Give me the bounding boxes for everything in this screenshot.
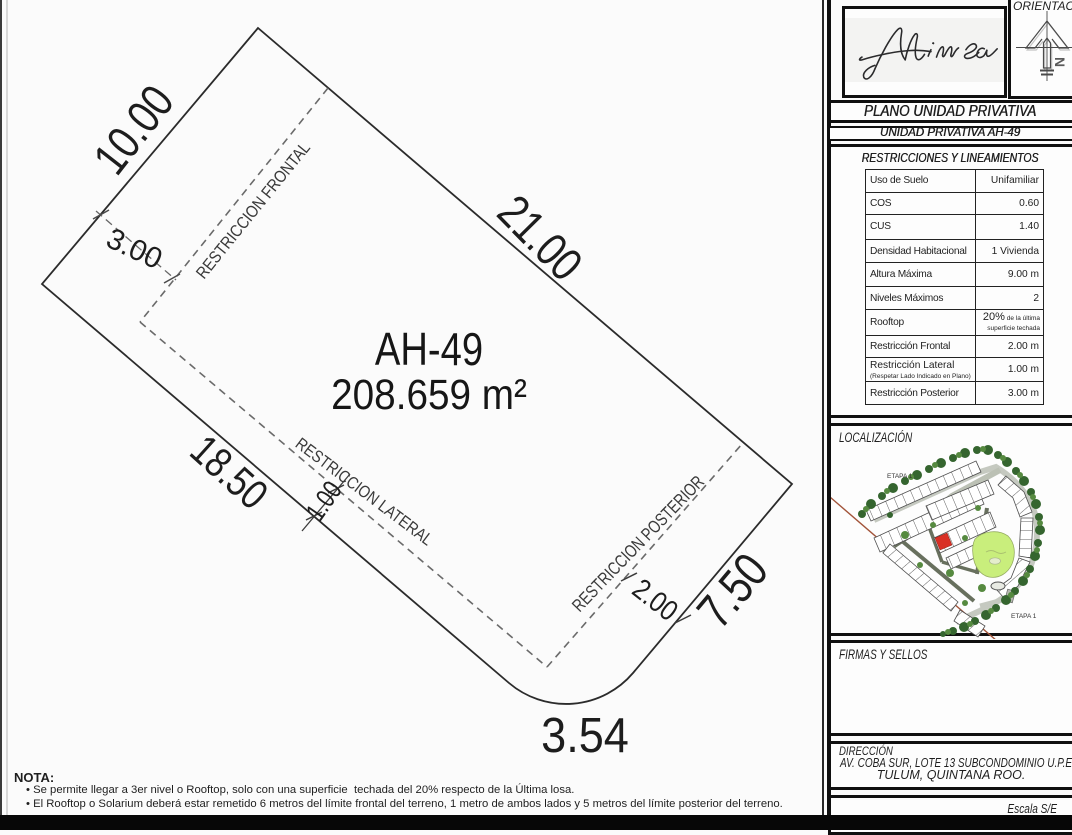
svg-text:N: N: [1052, 57, 1068, 67]
svg-text:AH-49: AH-49: [375, 324, 483, 375]
svg-text:RESTRICCION FRONTAL: RESTRICCION FRONTAL: [193, 139, 314, 283]
svg-text:10.00: 10.00: [84, 76, 185, 184]
svg-text:7.50: 7.50: [687, 543, 779, 638]
svg-text:3.00: 3.00: [101, 222, 167, 276]
svg-text:21.00: 21.00: [487, 186, 592, 292]
svg-text:208.659 m²: 208.659 m²: [331, 370, 527, 418]
svg-text:ETAPA 1: ETAPA 1: [1011, 613, 1037, 620]
svg-text:18.50: 18.50: [181, 426, 276, 519]
svg-text:3.54: 3.54: [541, 707, 629, 762]
svg-text:ETAPA 1: ETAPA 1: [887, 473, 913, 480]
svg-text:2.00: 2.00: [626, 572, 684, 627]
